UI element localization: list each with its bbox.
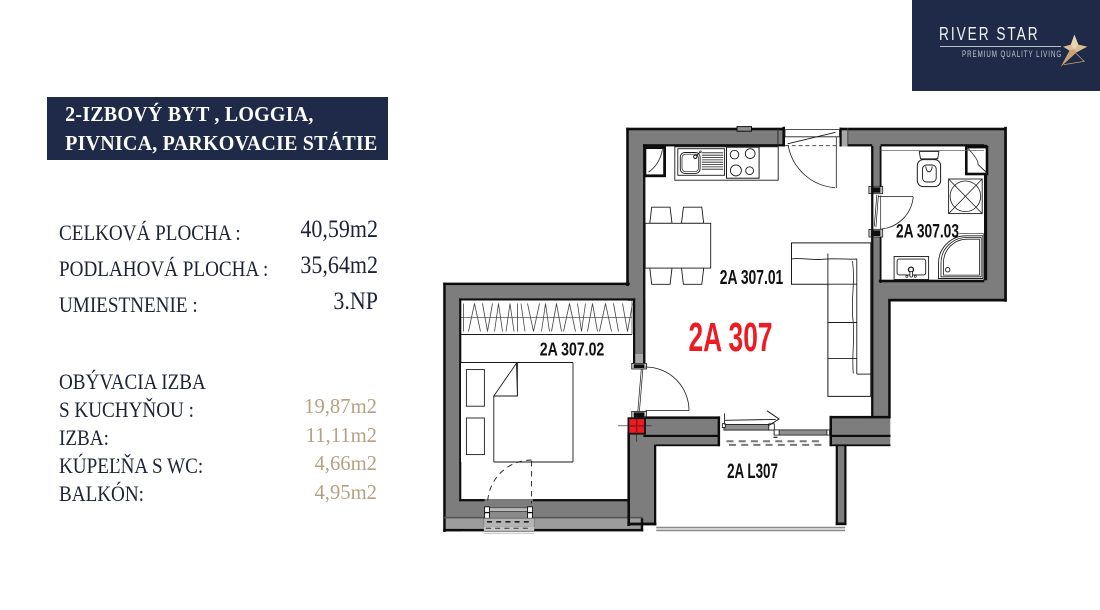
svg-text:2A 307.01: 2A 307.01: [720, 267, 784, 289]
svg-text:2A 307: 2A 307: [689, 314, 773, 360]
svg-text:2A L307: 2A L307: [727, 460, 778, 483]
svg-text:2A 307.03: 2A 307.03: [896, 220, 959, 242]
svg-text:2A 307.02: 2A 307.02: [540, 338, 605, 359]
